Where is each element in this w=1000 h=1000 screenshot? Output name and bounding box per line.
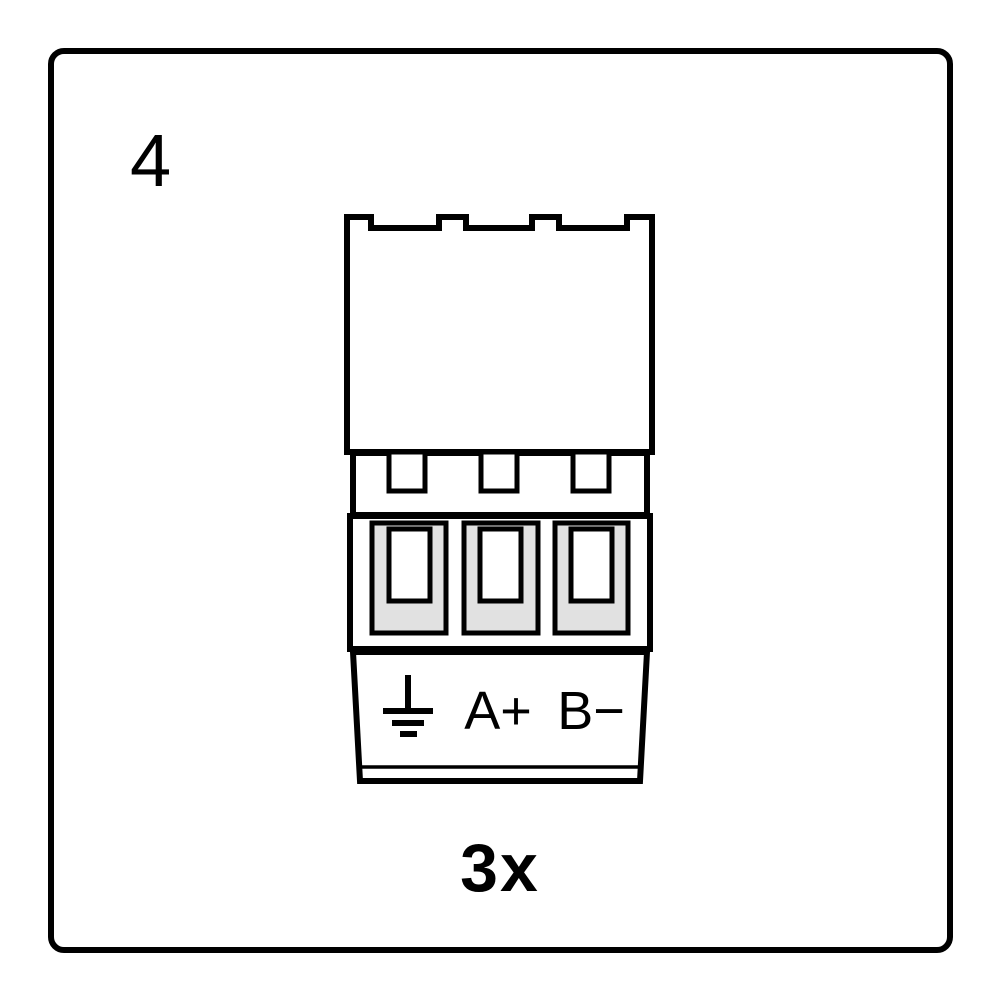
collar-slot-2 — [481, 452, 517, 491]
terminal-3-opening — [571, 529, 612, 601]
plug-housing-top — [347, 217, 652, 452]
quantity-label: 3x — [350, 834, 650, 902]
collar-slot-3 — [573, 452, 609, 491]
terminal-1-opening — [389, 529, 430, 601]
terminal-2-opening — [480, 529, 521, 601]
terminal-label-a: A+ — [464, 681, 532, 741]
terminal-label-b: B− — [557, 681, 625, 741]
collar-slot-1 — [389, 452, 425, 491]
